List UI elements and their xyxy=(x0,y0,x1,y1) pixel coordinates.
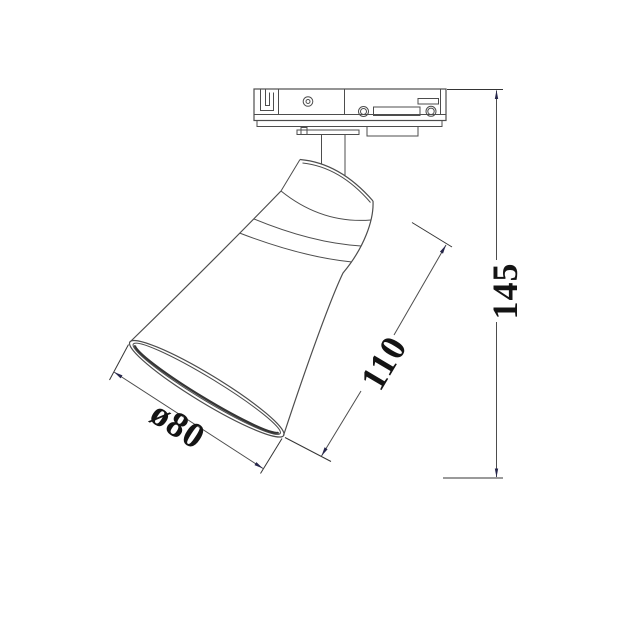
shade-cap-top-outer-arc xyxy=(300,160,373,202)
drawing-canvas: 145 110 ø80 xyxy=(0,0,630,630)
adapter-knob-right-inner xyxy=(428,108,434,114)
adapter-lower-block xyxy=(367,127,418,137)
dim-height-arrow-top xyxy=(495,90,498,99)
shade-band-upper-line xyxy=(254,219,361,246)
adapter-small-window xyxy=(418,99,439,105)
shade-right-silhouette xyxy=(284,201,374,436)
adapter-latch-bracket-inner xyxy=(266,90,270,106)
dim-diameter-arrow-left xyxy=(114,372,123,378)
shade-left-silhouette xyxy=(130,191,281,342)
dim-diameter-extension-right xyxy=(261,439,283,474)
dim-length-arrow-bottom xyxy=(322,447,328,456)
stem-mount-plate xyxy=(297,130,359,135)
dimension-length: 110 xyxy=(285,223,452,462)
dim-height-arrow-bottom xyxy=(495,469,498,478)
shade-band-lower-line xyxy=(240,233,353,262)
dim-height-label: 145 xyxy=(485,263,525,320)
dim-diameter-arrow-right xyxy=(255,462,264,468)
adapter-latch-bracket-outer xyxy=(261,90,274,111)
dimension-height: 145 xyxy=(443,90,525,479)
dim-length-label: 110 xyxy=(352,329,414,397)
technical-drawing: 145 110 ø80 xyxy=(0,0,630,630)
adapter-screw-outer xyxy=(303,97,313,107)
dim-length-line-upper xyxy=(394,245,446,335)
stem-mount-tab xyxy=(301,128,307,135)
shade-cap-top-inner-arc xyxy=(303,163,371,203)
dim-length-arrow-top xyxy=(440,245,446,254)
adapter-screw-inner xyxy=(306,100,310,104)
shade-cap-left-side xyxy=(281,160,300,192)
dim-length-extension-top xyxy=(412,223,452,248)
shade-neck-line xyxy=(281,191,371,220)
track-adapter xyxy=(254,89,446,136)
dim-length-line-lower xyxy=(322,391,362,456)
mounting-stem xyxy=(322,135,346,177)
adapter-base-strip xyxy=(257,121,442,127)
adapter-knob-left-inner xyxy=(361,109,367,115)
